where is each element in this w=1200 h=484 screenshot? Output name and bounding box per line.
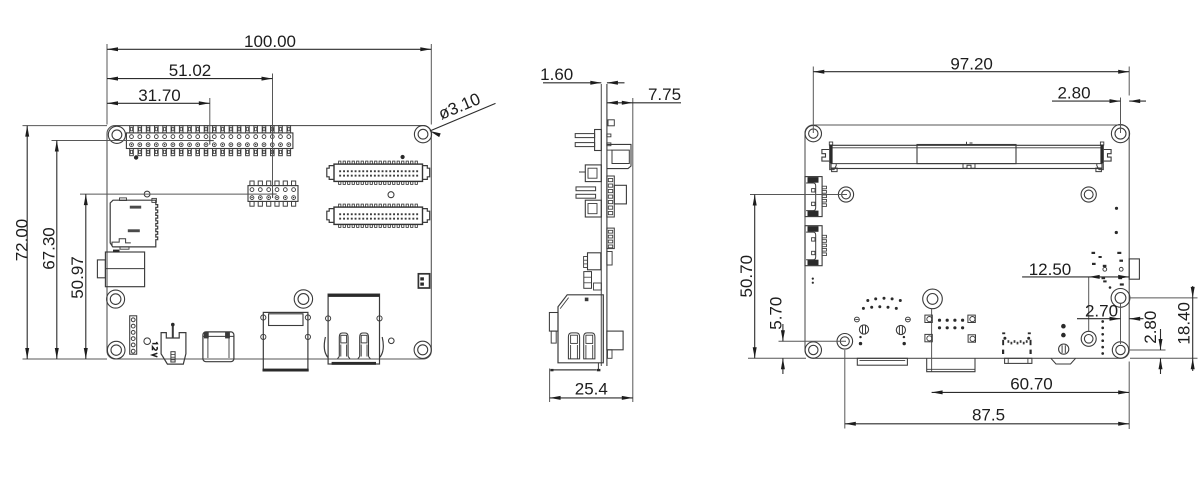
svg-text:67.30: 67.30	[40, 227, 59, 270]
svg-text:18.40: 18.40	[1174, 302, 1193, 345]
svg-text:25.4: 25.4	[575, 380, 608, 399]
svg-text:87.5: 87.5	[972, 406, 1005, 425]
svg-text:31.70: 31.70	[138, 86, 181, 105]
svg-text:7.75: 7.75	[648, 85, 681, 104]
svg-text:60.70: 60.70	[1010, 375, 1053, 394]
svg-text:50.70: 50.70	[737, 255, 756, 298]
svg-text:51.02: 51.02	[169, 61, 212, 80]
svg-text:12.50: 12.50	[1029, 260, 1072, 279]
svg-text:2.70: 2.70	[1085, 301, 1118, 320]
svg-text:97.20: 97.20	[950, 54, 993, 73]
svg-text:2.80: 2.80	[1057, 84, 1090, 103]
svg-text:50.97: 50.97	[68, 256, 87, 299]
svg-text:72.00: 72.00	[13, 219, 32, 262]
svg-text:5.70: 5.70	[766, 297, 785, 330]
svg-text:2.80: 2.80	[1141, 311, 1160, 344]
svg-text:100.00: 100.00	[244, 32, 296, 51]
svg-text:1.60: 1.60	[540, 65, 573, 84]
